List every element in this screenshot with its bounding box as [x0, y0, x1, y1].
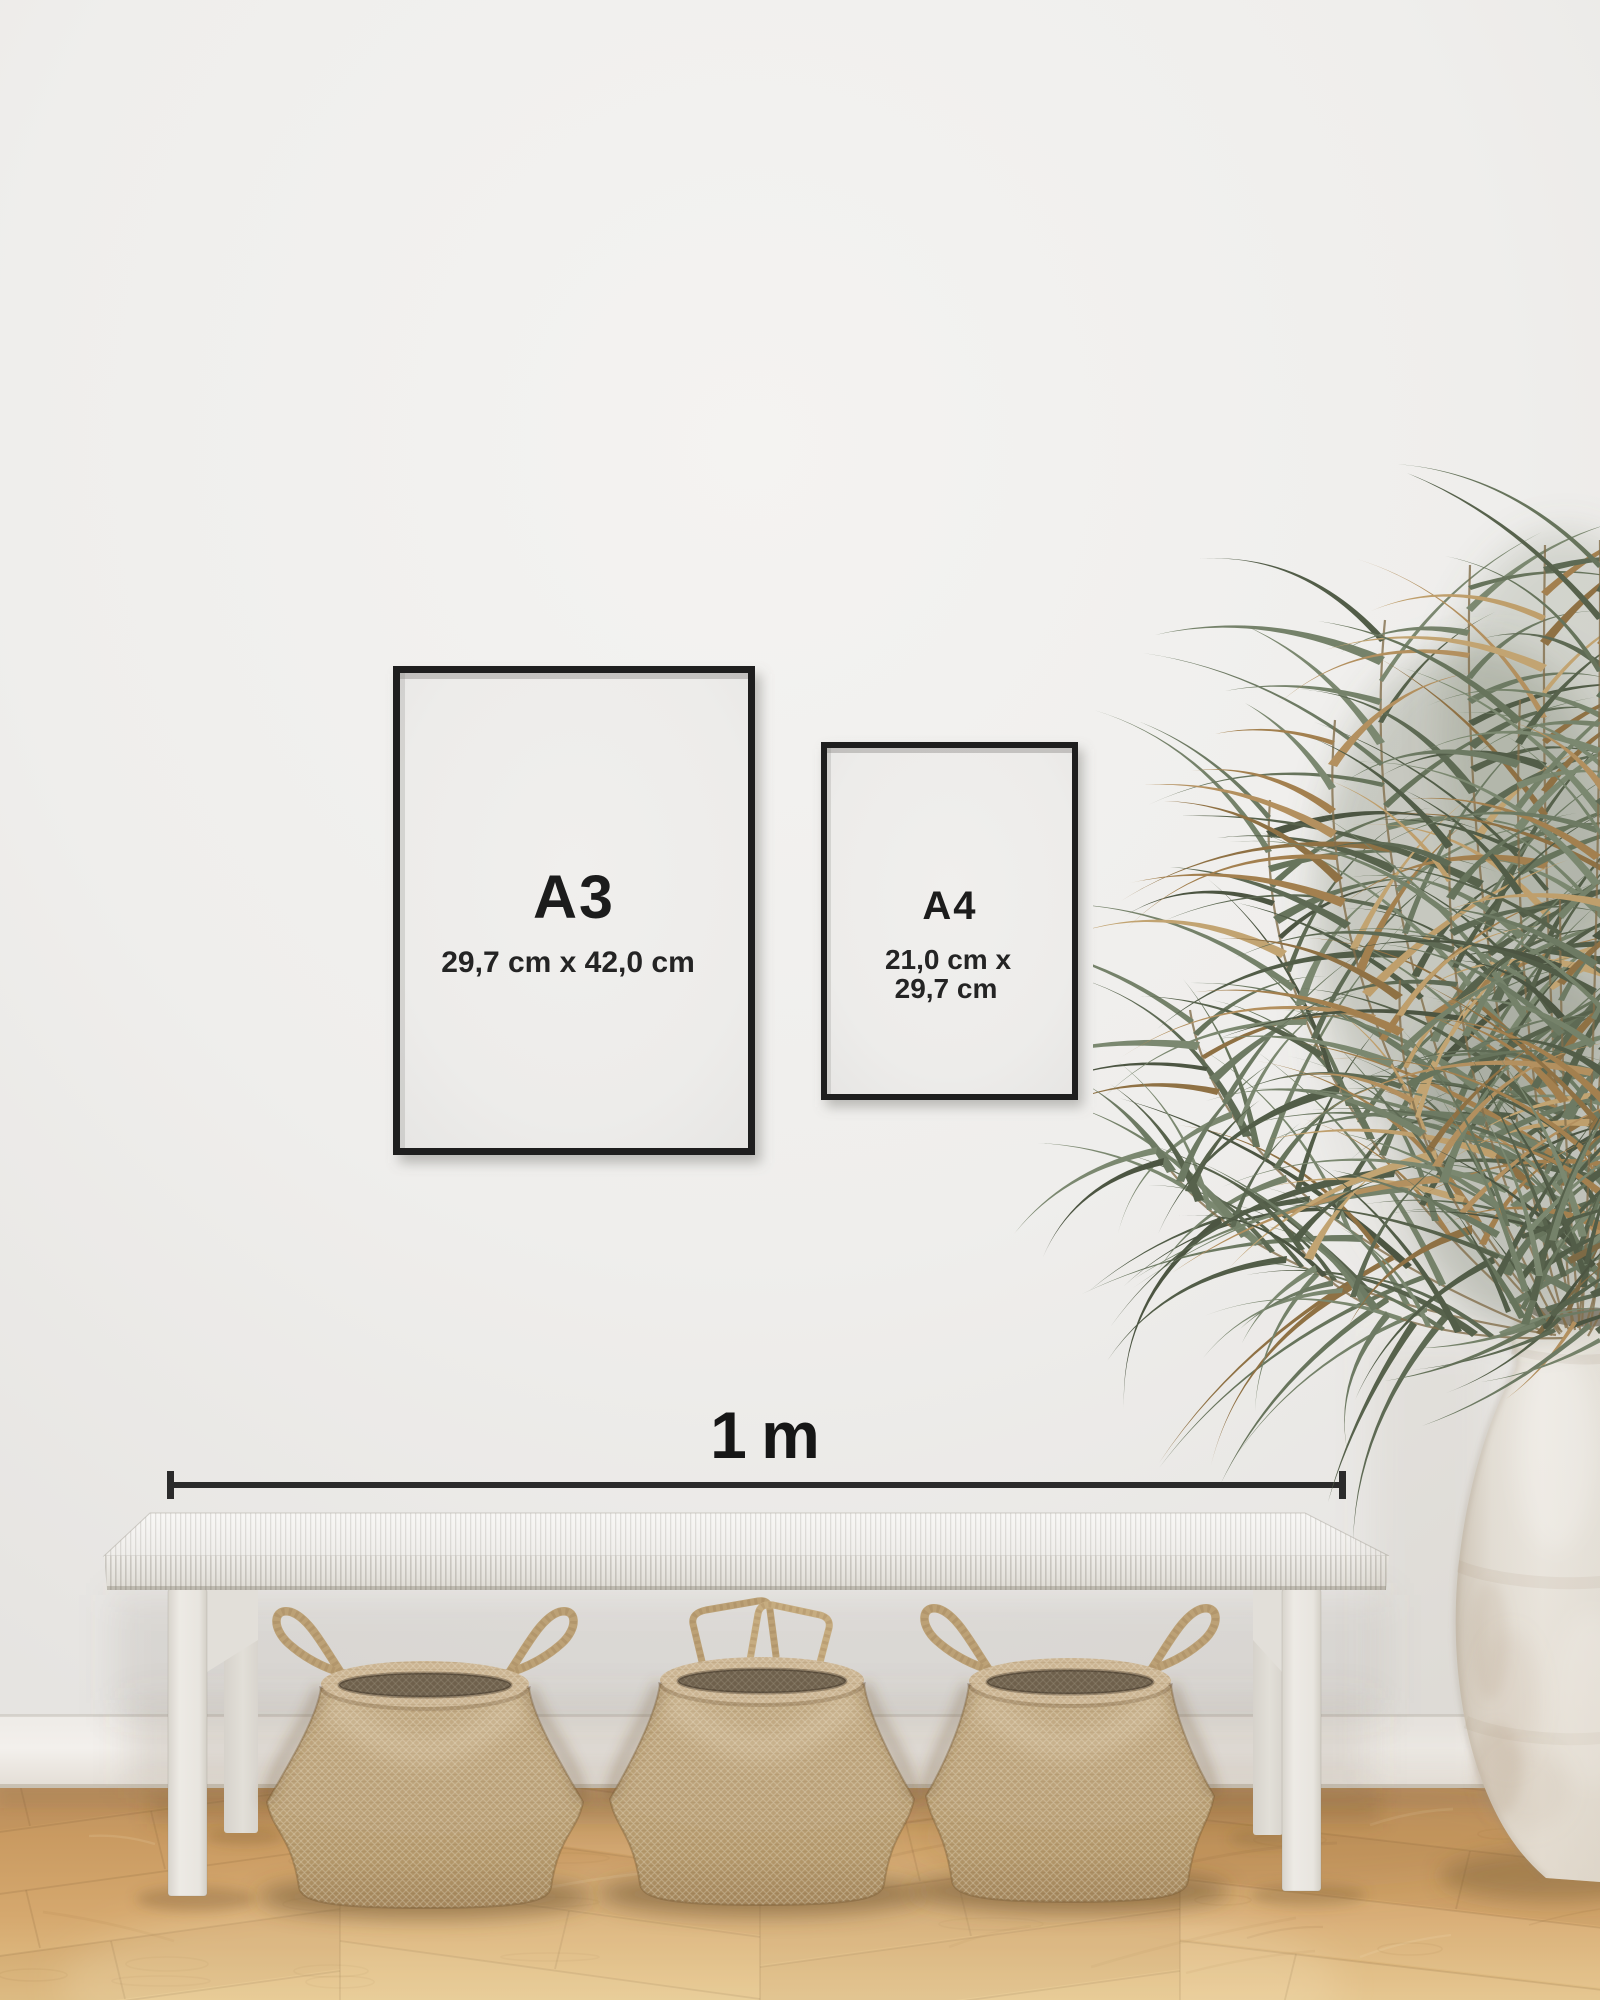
svg-text:A4: A4 [922, 884, 977, 928]
svg-text:21,0 cm x: 21,0 cm x [885, 944, 1012, 975]
svg-text:1 m: 1 m [710, 1398, 818, 1472]
svg-text:29,7 cm x 42,0 cm: 29,7 cm x 42,0 cm [441, 946, 695, 979]
svg-text:29,7 cm: 29,7 cm [895, 973, 998, 1004]
svg-text:A3: A3 [533, 863, 615, 931]
